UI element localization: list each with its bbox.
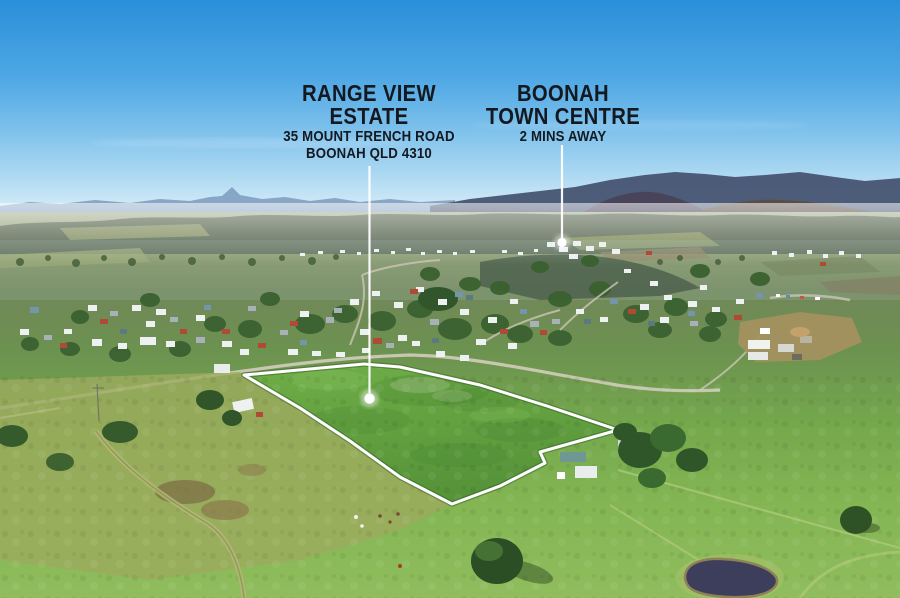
estate-address-line1: 35 MOUNT FRENCH ROAD — [283, 128, 454, 145]
estate-label: RANGE VIEW ESTATE 35 MOUNT FRENCH ROAD B… — [283, 82, 454, 162]
town-title-line2: TOWN CENTRE — [486, 105, 640, 128]
town-pointer-dot — [557, 238, 566, 247]
aerial-property-photo: RANGE VIEW ESTATE 35 MOUNT FRENCH ROAD B… — [0, 0, 900, 598]
estate-title-line2: ESTATE — [283, 105, 454, 128]
town-distance: 2 MINS AWAY — [486, 128, 640, 145]
town-title-line1: BOONAH — [486, 82, 640, 105]
estate-pointer-dot — [364, 393, 374, 403]
town-label: BOONAH TOWN CENTRE 2 MINS AWAY — [486, 82, 640, 145]
estate-title-line1: RANGE VIEW — [283, 82, 454, 105]
estate-address-line2: BOONAH QLD 4310 — [283, 145, 454, 162]
